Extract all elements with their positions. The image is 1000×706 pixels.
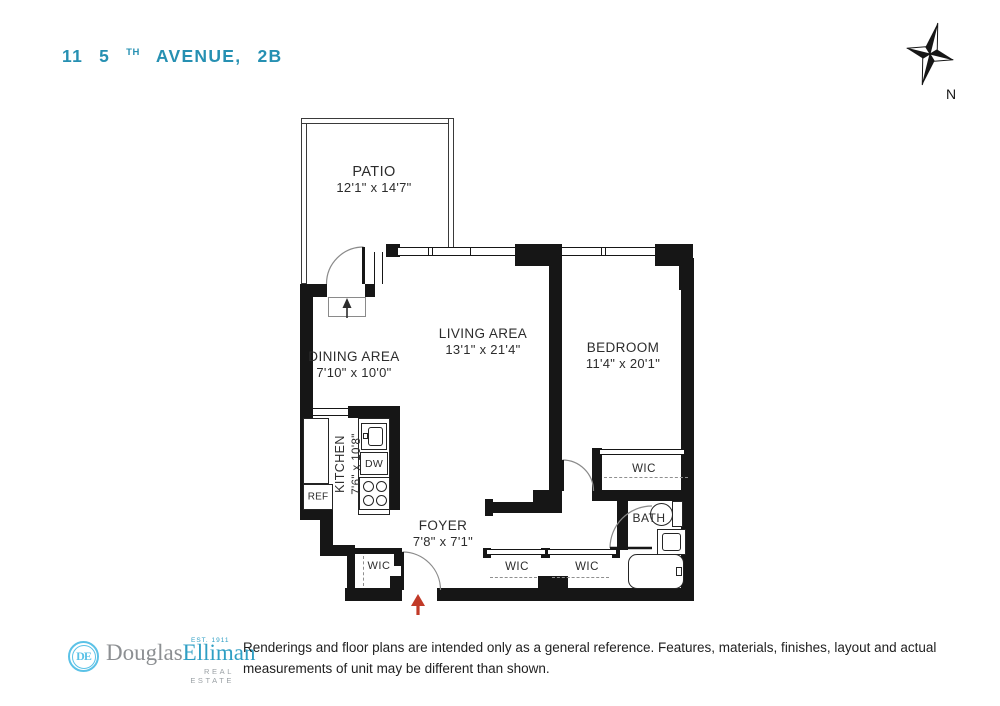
hall-wic-1-label: WIC [505, 561, 529, 573]
brand-name: DouglasElliman [106, 640, 256, 666]
wall-segment [538, 576, 568, 590]
bedroom-wic-label: WIC [632, 463, 656, 475]
window [562, 247, 655, 256]
bedroom-label: BEDROOM 11'4" x 20'1" [586, 340, 660, 372]
compass-star [899, 18, 961, 91]
bedroom-door-arc [563, 460, 594, 491]
dining-area-label: DINING AREA 7'10" x 10'0" [308, 349, 399, 381]
title-street-number: 5TH [99, 46, 140, 66]
title-building-number: 11 [62, 46, 83, 66]
wall-segment [487, 502, 562, 513]
bedroom-name: BEDROOM [586, 340, 660, 356]
hall-wic-2-label: WIC [575, 561, 599, 573]
patio-name: PATIO [336, 164, 411, 180]
patio-wall-top [301, 118, 454, 124]
entry-arrow-head [411, 594, 425, 606]
living-area-name: LIVING AREA [439, 326, 527, 342]
refrigerator-label: REF [308, 492, 329, 503]
bathtub-faucet [676, 567, 682, 576]
title-unit: 2B [257, 46, 282, 66]
entry-door-arc [403, 552, 441, 590]
wall-segment [300, 406, 313, 418]
foyer-dimensions: 7'8" x 7'1" [413, 534, 473, 550]
window-mullion [470, 247, 471, 256]
closet-dash-line [604, 477, 688, 478]
brand-monogram: DE [72, 645, 96, 669]
compass-north-label: N [946, 86, 956, 102]
window-mullion [432, 247, 433, 256]
wall-segment [617, 498, 628, 550]
wall-segment [365, 284, 375, 297]
kitchen-label: KITCHEN 7'6" x 10'8" [332, 404, 366, 524]
patio-label: PATIO 12'1" x 14'7" [336, 164, 411, 196]
wall-segment [549, 258, 562, 504]
window-mullion [605, 247, 606, 256]
window [398, 247, 515, 256]
closet-partition [487, 549, 545, 555]
brand-logo: DE DouglasElliman EST. 1911 REAL ESTATE [68, 636, 243, 680]
wall-segment [390, 576, 402, 588]
brand-monogram-icon: DE [68, 641, 99, 672]
closet-dash-line [552, 577, 609, 578]
patio-wall-right [448, 118, 454, 248]
wall-segment [592, 490, 694, 501]
patio-dimensions: 12'1" x 14'7" [336, 180, 411, 196]
closet-partition [548, 549, 616, 555]
stove-burner [376, 495, 387, 506]
page-title: 115THAVENUE,2B [62, 46, 298, 67]
bath-sink [662, 533, 681, 551]
bedroom-dimensions: 11'4" x 20'1" [586, 356, 660, 372]
closet-dash-line [363, 556, 364, 586]
window-mullion [601, 247, 602, 256]
kitchen-name: KITCHEN [333, 435, 347, 493]
window-mullion [428, 247, 429, 256]
patio-step [328, 297, 366, 317]
compass-rose: N [890, 18, 982, 108]
disclaimer-text: Renderings and floor plans are intended … [243, 637, 940, 679]
kitchen-counter [303, 418, 329, 484]
bath-label: BATH [632, 511, 665, 525]
living-area-dimensions: 13'1" x 21'4" [439, 342, 527, 358]
dining-area-dimensions: 7'10" x 10'0" [308, 365, 399, 381]
dining-area-name: DINING AREA [308, 349, 399, 365]
floor-plan-page: 115THAVENUE,2B N [0, 0, 1000, 706]
brand-established: EST. 1911 [191, 637, 230, 644]
foyer-wic-label: WIC [368, 560, 391, 572]
toilet-tank [672, 501, 683, 527]
kitchen-dimensions: 7'6" x 10'8" [351, 433, 363, 494]
patio-wall-left [301, 118, 307, 284]
wall-segment [345, 588, 402, 601]
stove-burner [376, 481, 387, 492]
dishwasher-label: DW [365, 458, 383, 470]
brand-name-part-1: Douglas [106, 640, 183, 665]
living-area-label: LIVING AREA 13'1" x 21'4" [439, 326, 527, 358]
title-street-name: AVENUE, [156, 46, 242, 66]
wall-segment [347, 548, 355, 591]
window [374, 252, 383, 284]
wall-segment [394, 550, 402, 566]
closet-partition [600, 449, 684, 455]
title-street-ordinal: TH [126, 47, 140, 58]
brand-tagline: REAL ESTATE [160, 667, 234, 685]
patio-door-arc [327, 247, 364, 284]
foyer-label: FOYER 7'8" x 7'1" [413, 518, 473, 550]
kitchen-sink-basin [368, 427, 383, 446]
closet-dash-line [490, 577, 537, 578]
foyer-name: FOYER [413, 518, 473, 534]
